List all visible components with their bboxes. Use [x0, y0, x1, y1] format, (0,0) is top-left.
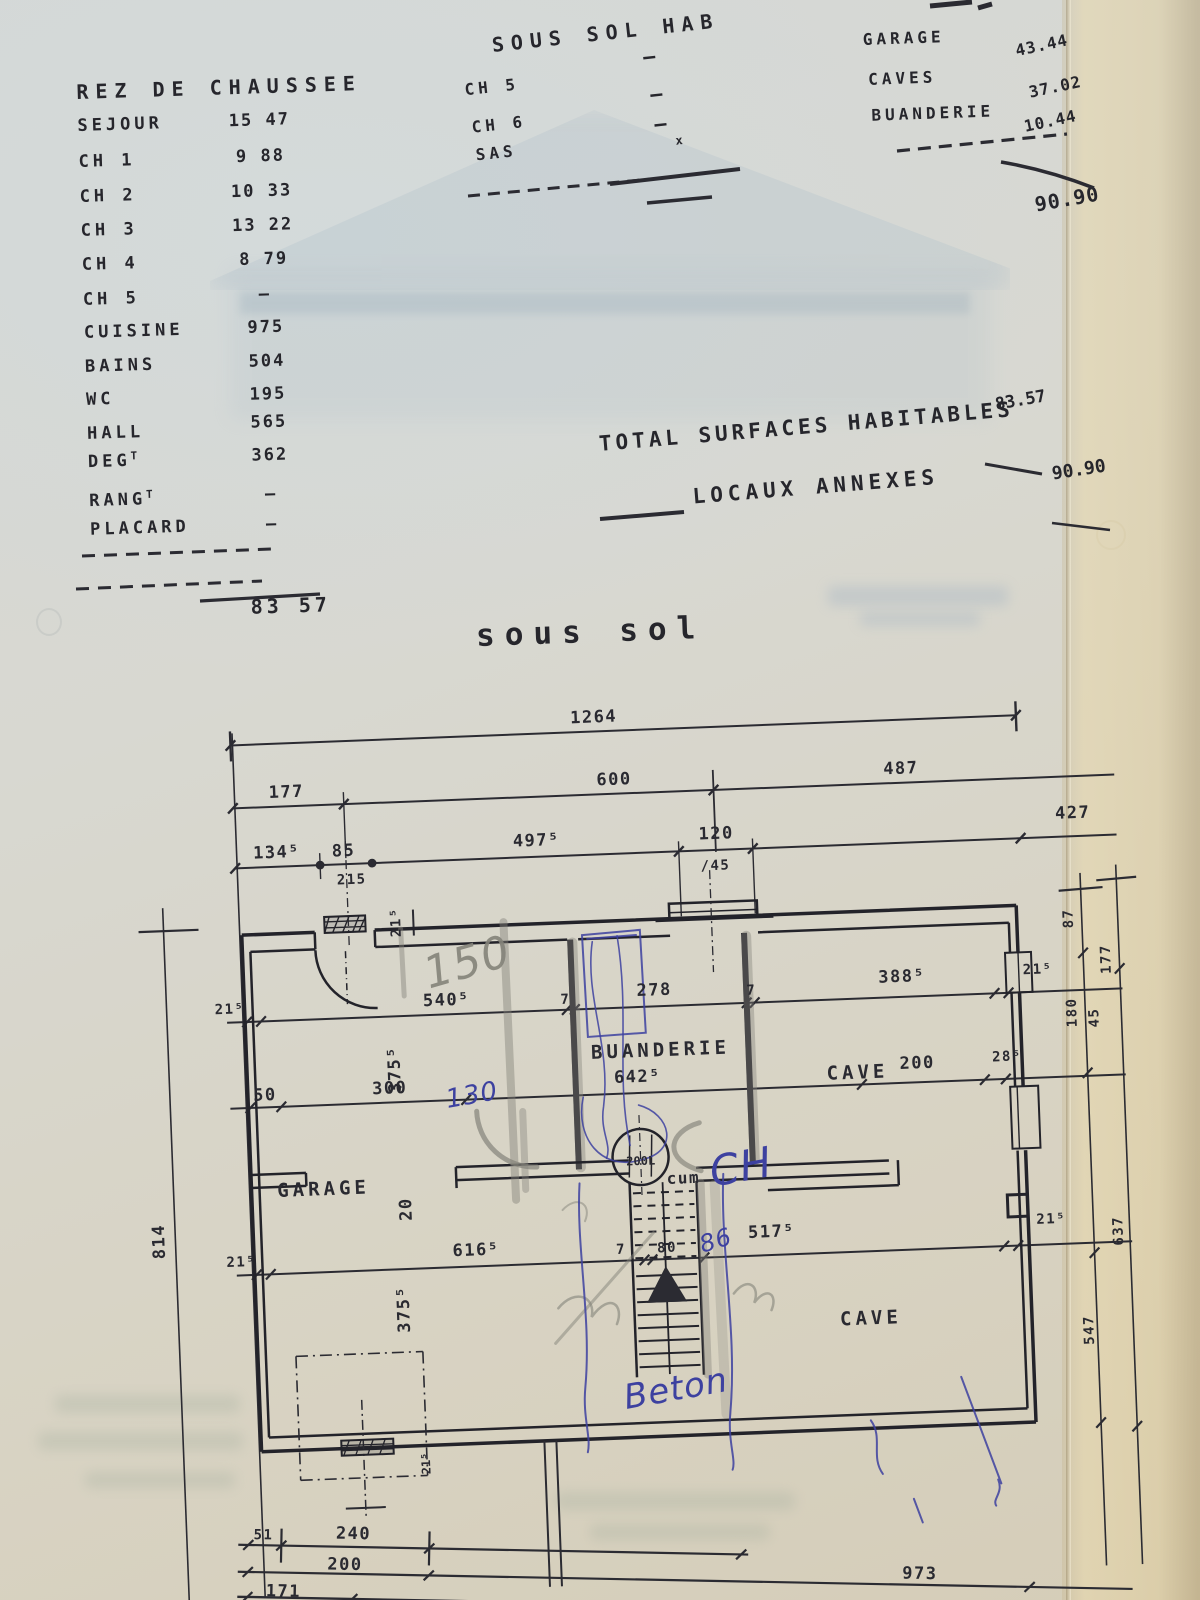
dim-label: 80	[657, 1240, 677, 1257]
dim-label: /45	[700, 857, 730, 874]
dim-label: 487	[883, 758, 919, 779]
dim-label: 814	[149, 1224, 170, 1260]
stair-direction-arrow	[646, 1265, 687, 1303]
dim-label: 20	[396, 1197, 417, 1221]
dim-label: 200	[327, 1554, 363, 1575]
room-label-cave-lower: CAVE	[840, 1306, 903, 1330]
dim-label: 28⁵	[992, 1048, 1022, 1065]
dim-label: 7	[746, 982, 757, 998]
dim-label: 177	[1098, 944, 1115, 974]
dim-label: 427	[1055, 803, 1091, 824]
dim-label: 547	[1081, 1315, 1098, 1345]
table-separator-lines	[76, 2, 1110, 601]
scanned-plan-page: REZ DE CHAUSSEE SEJOUR15 47 CH 19 88 CH …	[0, 0, 1200, 1600]
dim-label: 240	[336, 1524, 372, 1545]
handwritten-150: 150	[418, 926, 517, 1000]
dim-label: 278	[636, 980, 672, 1001]
dim-label: 180	[1064, 997, 1081, 1027]
dim-label: 21⁵	[1022, 961, 1052, 978]
room-label-buanderie: BUANDERIE	[591, 1037, 731, 1064]
room-label-cave-upper: CAVE	[826, 1060, 889, 1084]
dim-label: 50	[253, 1085, 277, 1106]
dim-label: 517⁵	[748, 1221, 796, 1243]
entry-door	[314, 915, 378, 1010]
floor-plan-svg: 1264 177 600 487 134⁵ 85 215 497⁵ 120 /4…	[0, 0, 1200, 1600]
dim-label: 7	[616, 1242, 627, 1258]
dim-label: 21⁵	[419, 1452, 434, 1474]
cumulus-label: cum	[666, 1168, 700, 1188]
room-labels: BUANDERIE CAVE GARAGE CAVE cum 200L	[272, 1030, 902, 1352]
dim-label: 21⁵	[226, 1254, 256, 1271]
dim-label: 51	[253, 1527, 273, 1543]
bay-window	[654, 868, 776, 974]
dim-label: 171	[266, 1581, 302, 1600]
dim-label: 637	[1110, 1216, 1127, 1246]
dim-label: 200	[899, 1053, 935, 1074]
dim-label: 21⁵	[1036, 1211, 1066, 1228]
projection-lines	[544, 1440, 562, 1586]
tank-capacity-label: 200L	[626, 1153, 655, 1168]
dim-label: 87	[1060, 908, 1077, 928]
handwritten-annotations: 150 130 CH 86 Beton	[417, 916, 785, 1426]
dim-label: 388⁵	[878, 966, 926, 988]
dim-label: 375⁵	[393, 1285, 415, 1333]
dim-label: 21⁵	[388, 907, 405, 937]
dimension-lines	[131, 697, 1163, 1600]
handwritten-ch: CH	[706, 1137, 777, 1196]
dim-label: 973	[902, 1564, 938, 1585]
dim-label: 600	[596, 769, 632, 790]
dim-label: 497⁵	[512, 830, 560, 852]
dim-label: 642⁵	[614, 1066, 662, 1088]
dim-label: 120	[698, 823, 734, 844]
dim-label: 134⁵	[253, 842, 301, 864]
dim-label: 7	[560, 992, 571, 1008]
dim-label: 45	[1086, 1007, 1103, 1027]
interior-walls	[242, 927, 898, 1210]
room-label-garage: GARAGE	[277, 1176, 370, 1202]
dim-label: 1264	[570, 707, 618, 729]
dim-label: 616⁵	[452, 1240, 500, 1262]
dim-label: 21⁵	[214, 1001, 244, 1018]
dim-label: 375⁵	[384, 1046, 406, 1094]
dim-label: 215	[337, 871, 367, 888]
dim-label: 177	[268, 782, 304, 803]
handwritten-130: 130	[443, 1076, 500, 1115]
bottom-dimension-lines: 51 240 200 973 171	[237, 1522, 1133, 1600]
dim-label: 85	[331, 841, 355, 862]
